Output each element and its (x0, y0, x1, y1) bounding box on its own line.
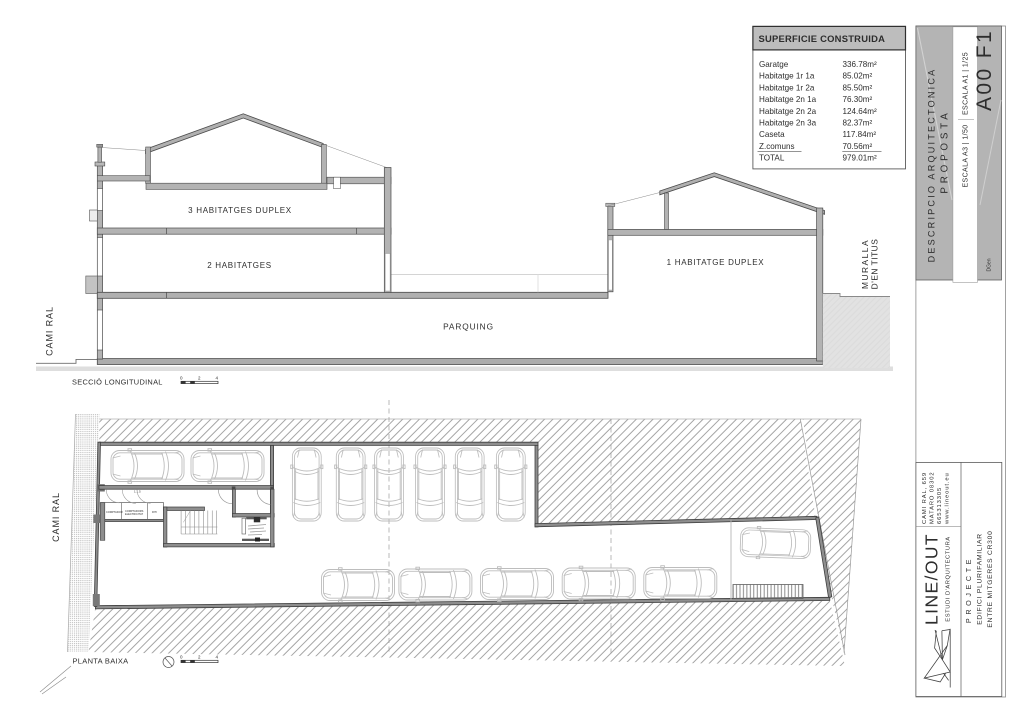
svg-text:82.37m²: 82.37m² (843, 119, 873, 128)
svg-text:117.84m²: 117.84m² (843, 130, 877, 139)
svg-text:MATARO 08302: MATARO 08302 (930, 472, 936, 524)
svg-text:ENTRE MITGERES CR300: ENTRE MITGERES CR300 (987, 530, 994, 627)
svg-text:336.78m²: 336.78m² (843, 60, 877, 69)
svg-text:2 HABITATGES: 2 HABITATGES (207, 261, 272, 270)
svg-text:SECCIÓ LONGITUDINAL: SECCIÓ LONGITUDINAL (72, 378, 163, 387)
svg-text:D'EN TITUS: D'EN TITUS (870, 239, 880, 290)
svg-text:ELECTRICITAT: ELECTRICITAT (125, 512, 143, 516)
svg-text:Caseta: Caseta (759, 130, 785, 139)
svg-text:Habitatge 2n 1a: Habitatge 2n 1a (759, 95, 817, 104)
svg-text:LINE/OUT: LINE/OUT (922, 533, 942, 625)
svg-text:PLANTA BAIXA: PLANTA BAIXA (73, 657, 129, 666)
svg-text:85.50m²: 85.50m² (843, 83, 873, 92)
svg-text:Garatge: Garatge (759, 60, 789, 69)
svg-text:PROJECTE: PROJECTE (964, 556, 973, 623)
svg-text:Habitatge 2n 3a: Habitatge 2n 3a (759, 119, 817, 128)
svg-text:124.64m²: 124.64m² (843, 107, 877, 116)
svg-text:PARQUING: PARQUING (443, 322, 494, 332)
svg-text:70.56m²: 70.56m² (843, 142, 873, 151)
svg-text:EDIFICI PLURIFAMILIAR: EDIFICI PLURIFAMILIAR (977, 533, 984, 625)
svg-text:76.30m²: 76.30m² (843, 95, 873, 104)
svg-text:DESCRIPCIO ARQUITECTONICA: DESCRIPCIO ARQUITECTONICA (927, 68, 937, 263)
svg-text:CAMI RAL: CAMI RAL (45, 306, 55, 356)
svg-text:979.01m²: 979.01m² (843, 154, 877, 163)
svg-text:Habitatge 1r 1a: Habitatge 1r 1a (759, 72, 815, 81)
svg-text:DGen: DGen (987, 258, 993, 271)
svg-text:665313305: 665313305 (937, 487, 943, 524)
svg-text:Z.comuns: Z.comuns (759, 142, 795, 151)
svg-text:CAMI RAL: CAMI RAL (51, 492, 61, 542)
svg-text:MURALLA: MURALLA (860, 239, 870, 289)
svg-text:SUPERFICIE CONSTRUIDA: SUPERFICIE CONSTRUIDA (759, 33, 886, 44)
svg-text:PROPOSTA: PROPOSTA (940, 109, 951, 193)
svg-text:Habitatge 1r 2a: Habitatge 1r 2a (759, 83, 815, 92)
svg-text:www.lineout.eu: www.lineout.eu (945, 472, 951, 525)
svg-text:ESCALA A3 | 1/50: ESCALA A3 | 1/50 (963, 124, 970, 187)
svg-text:RITI: RITI (152, 510, 157, 514)
svg-text:1 HABITATGE DUPLEX: 1 HABITATGE DUPLEX (667, 258, 765, 267)
svg-text:A00 F1: A00 F1 (973, 29, 996, 111)
svg-text:ESCALA A1 | 1/25: ESCALA A1 | 1/25 (963, 52, 970, 115)
svg-text:COMPTADOR: COMPTADOR (106, 510, 123, 514)
svg-text:TOTAL: TOTAL (759, 154, 785, 163)
svg-text:CAMI RAL, 659: CAMI RAL, 659 (922, 472, 928, 524)
svg-text:85.02m²: 85.02m² (843, 72, 873, 81)
svg-text:Habitatge 2n 2a: Habitatge 2n 2a (759, 107, 817, 116)
svg-text:ESTUDI D'ARQUITECTURA: ESTUDI D'ARQUITECTURA (946, 536, 952, 621)
svg-text:3 HABITATGES DUPLEX: 3 HABITATGES DUPLEX (188, 206, 292, 215)
